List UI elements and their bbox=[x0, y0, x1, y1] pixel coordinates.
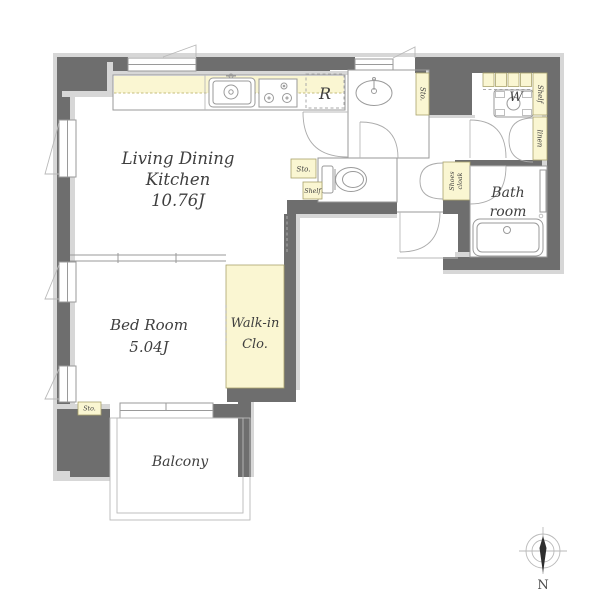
toilet-room bbox=[318, 158, 397, 202]
window-kitchen-top bbox=[128, 45, 196, 71]
label-ldk-1: Living Dining bbox=[121, 149, 235, 168]
shelf-box-ldk: Shelf bbox=[303, 182, 322, 199]
pipe-space bbox=[429, 68, 472, 115]
entrance-porch bbox=[397, 207, 455, 258]
label-sto-ldk: Sto. bbox=[297, 166, 311, 174]
label-refrigerator: R bbox=[318, 84, 331, 103]
label-walkin-2: Clo. bbox=[242, 337, 268, 352]
label-balcony: Balcony bbox=[151, 454, 209, 470]
compass: N bbox=[519, 527, 567, 593]
kitchen-counter bbox=[113, 74, 345, 110]
label-shoes-cloak-1: Shoes bbox=[449, 171, 456, 191]
label-bedroom-size: 5.04J bbox=[129, 338, 169, 356]
floor-plan: R Sto. Sto. Shelf bbox=[0, 0, 600, 600]
label-washer: W bbox=[509, 90, 524, 105]
label-linen: linen bbox=[536, 130, 544, 148]
label-walkin-1: Walk-in bbox=[231, 316, 280, 331]
label-north: N bbox=[537, 578, 548, 593]
label-ldk-2: Kitchen bbox=[145, 170, 211, 189]
storage-box-ldk: Sto. bbox=[291, 159, 316, 178]
window-bedroom-left-1 bbox=[45, 262, 76, 302]
label-shoes-cloak-2: cloak bbox=[457, 172, 464, 189]
floor-bases bbox=[70, 63, 555, 520]
label-ldk-size: 10.76J bbox=[151, 191, 206, 210]
kitchen-sink-icon bbox=[209, 74, 255, 107]
label-sto-bedroom: Sto. bbox=[83, 406, 96, 413]
shelf-closet: Shelf bbox=[533, 73, 547, 115]
label-shelf-upper: Shelf bbox=[536, 85, 544, 105]
window-bedroom-left-2 bbox=[45, 366, 76, 402]
label-bath-1: Bath bbox=[490, 185, 524, 201]
gas-stove-icon bbox=[259, 79, 297, 107]
label-sto-washroom: Sto. bbox=[419, 87, 427, 101]
floor-plan-drawing: R Sto. Sto. Shelf bbox=[0, 0, 600, 600]
storage-box-bedroom: Sto. bbox=[78, 402, 101, 415]
label-shelf-small: Shelf bbox=[304, 188, 322, 195]
balcony-sliding-door bbox=[120, 403, 213, 418]
label-bath-2: room bbox=[490, 204, 527, 220]
storage-column-washroom: Sto. bbox=[416, 73, 429, 115]
window-ldk-left bbox=[45, 120, 76, 177]
label-bedroom: Bed Room bbox=[109, 316, 188, 334]
